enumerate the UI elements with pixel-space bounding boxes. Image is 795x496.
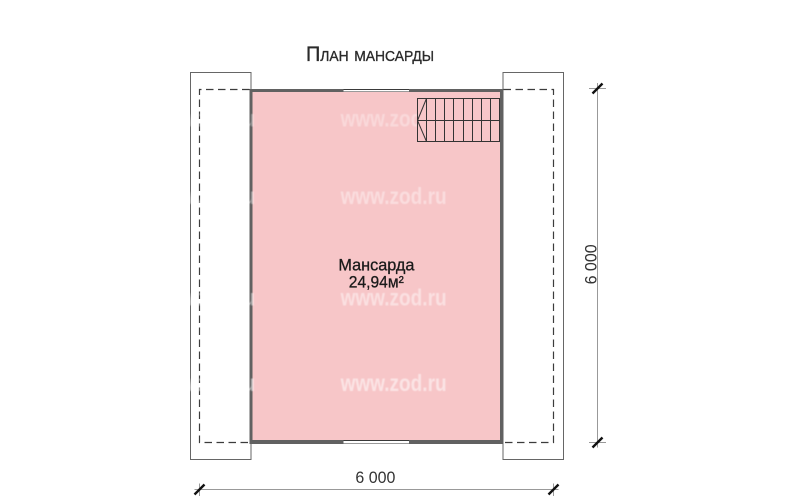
svg-text:www.zod.ru: www.zod.ru: [148, 106, 255, 132]
svg-text:6 000: 6 000: [581, 244, 600, 284]
svg-text:www.zod.ru: www.zod.ru: [340, 183, 447, 209]
svg-text:6 000: 6 000: [355, 468, 395, 487]
svg-text:24,94м²: 24,94м²: [349, 273, 404, 292]
svg-text:www.zod.ru: www.zod.ru: [340, 370, 447, 396]
svg-text:www.zod.ru: www.zod.ru: [148, 370, 255, 396]
svg-text:План мансарды: План мансарды: [306, 42, 434, 66]
svg-text:www.zod.ru: www.zod.ru: [148, 285, 255, 311]
svg-text:www.zod.ru: www.zod.ru: [148, 183, 255, 209]
